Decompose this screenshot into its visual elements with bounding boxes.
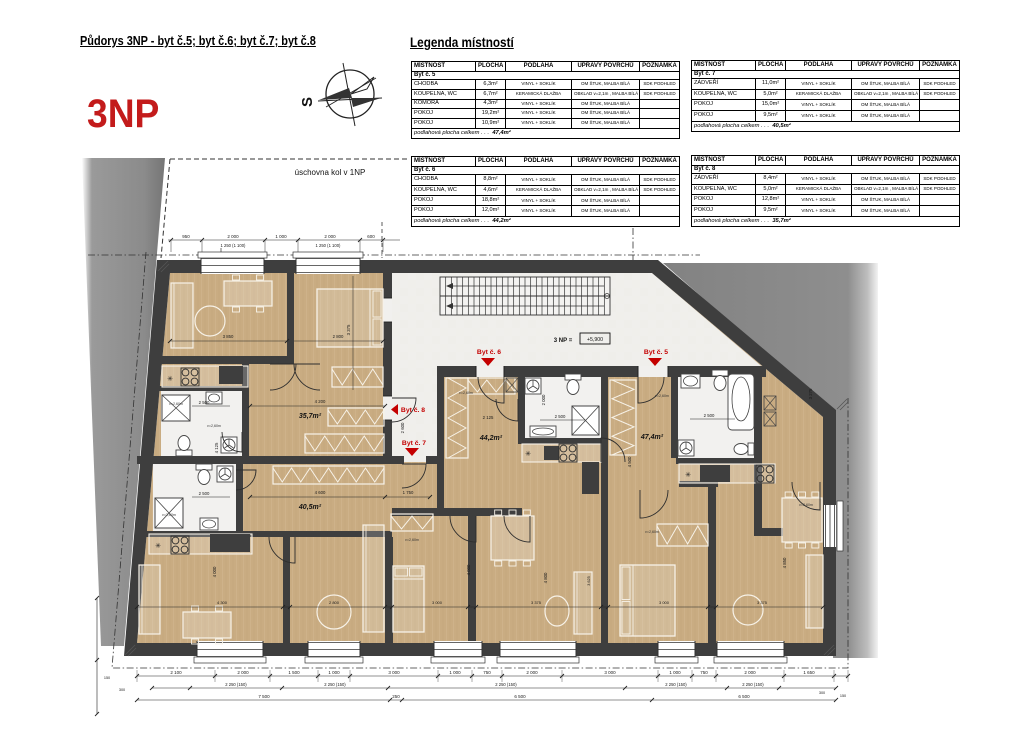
svg-text:v=2,60m: v=2,60m (162, 513, 176, 517)
svg-text:4 200: 4 200 (315, 399, 326, 404)
svg-text:Byt č. 8: Byt č. 8 (401, 407, 425, 414)
svg-text:2 800: 2 800 (333, 334, 344, 339)
svg-text:1 000: 1 000 (449, 670, 461, 675)
svg-text:2 600: 2 600 (400, 422, 405, 433)
svg-text:2 250 (150): 2 250 (150) (324, 682, 346, 687)
svg-text:950: 950 (182, 234, 190, 239)
svg-text:47,4m²: 47,4m² (640, 434, 664, 441)
svg-text:3 000: 3 000 (604, 670, 616, 675)
svg-text:600: 600 (367, 234, 375, 239)
svg-text:2 250 (150): 2 250 (150) (225, 682, 247, 687)
svg-text:300: 300 (819, 691, 825, 695)
svg-text:4 500: 4 500 (627, 456, 632, 467)
svg-text:2 500: 2 500 (199, 491, 210, 496)
svg-text:6 500: 6 500 (514, 694, 526, 699)
svg-text:40,5m²: 40,5m² (298, 504, 322, 511)
svg-text:150: 150 (840, 694, 846, 698)
svg-text:300: 300 (119, 688, 125, 692)
svg-text:2 500: 2 500 (555, 414, 566, 419)
svg-text:Byt č. 7: Byt č. 7 (402, 440, 426, 447)
svg-text:4 125: 4 125 (214, 442, 219, 453)
svg-text:3 375: 3 375 (757, 600, 768, 605)
svg-text:750: 750 (700, 670, 708, 675)
svg-text:4 000: 4 000 (466, 564, 471, 575)
svg-text:1 500: 1 500 (288, 670, 300, 675)
svg-text:v=2,60m: v=2,60m (169, 402, 183, 406)
svg-text:3 000: 3 000 (432, 600, 443, 605)
svg-text:3 275: 3 275 (808, 388, 813, 399)
svg-text:2 000: 2 000 (237, 670, 249, 675)
svg-text:2 000: 2 000 (324, 234, 336, 239)
svg-text:4 850: 4 850 (782, 557, 787, 568)
svg-text:750: 750 (483, 670, 491, 675)
svg-text:3 850: 3 850 (223, 334, 234, 339)
svg-text:S: S (299, 97, 316, 107)
svg-text:35,7m²: 35,7m² (299, 413, 322, 420)
svg-text:2 125: 2 125 (483, 415, 494, 420)
svg-text:2 000: 2 000 (526, 670, 538, 675)
svg-text:2 250 (150): 2 250 (150) (495, 682, 517, 687)
svg-text:2 250 (150): 2 250 (150) (665, 682, 687, 687)
svg-text:2 500: 2 500 (199, 400, 210, 405)
svg-text:✳: ✳ (685, 471, 691, 479)
svg-text:150: 150 (104, 676, 110, 680)
svg-text:+5,900: +5,900 (587, 337, 603, 343)
svg-text:3 375: 3 375 (531, 600, 542, 605)
svg-text:2 500: 2 500 (704, 413, 715, 418)
svg-text:1 250 (1 100): 1 250 (1 100) (221, 243, 247, 248)
svg-text:4 000: 4 000 (212, 566, 217, 577)
svg-text:3 NP =: 3 NP = (554, 338, 573, 344)
svg-text:2 100: 2 100 (170, 670, 182, 675)
svg-text:3 000: 3 000 (388, 670, 400, 675)
svg-text:44,2m²: 44,2m² (479, 435, 503, 442)
svg-text:1 000: 1 000 (328, 670, 340, 675)
svg-text:1 650: 1 650 (803, 670, 815, 675)
svg-text:v=2,60m: v=2,60m (655, 394, 669, 398)
svg-text:1 750: 1 750 (403, 490, 414, 495)
svg-text:3 000: 3 000 (659, 600, 670, 605)
svg-text:4 800: 4 800 (543, 572, 548, 583)
svg-text:✳: ✳ (167, 375, 173, 383)
svg-text:1 000: 1 000 (669, 670, 681, 675)
svg-text:2 800: 2 800 (329, 600, 340, 605)
svg-text:2 000: 2 000 (227, 234, 239, 239)
svg-text:v=2,60m: v=2,60m (645, 530, 659, 534)
svg-text:4 300: 4 300 (217, 600, 228, 605)
svg-text:✳: ✳ (155, 542, 161, 550)
svg-text:v=2,60m: v=2,60m (207, 424, 221, 428)
svg-text:2 250 (150): 2 250 (150) (742, 682, 764, 687)
svg-text:3 625: 3 625 (587, 576, 591, 586)
svg-text:Byt č. 5: Byt č. 5 (644, 349, 668, 356)
svg-text:1 250 (1 100): 1 250 (1 100) (316, 243, 342, 248)
svg-text:v=2,60m: v=2,60m (799, 503, 813, 507)
svg-text:1 000: 1 000 (275, 234, 287, 239)
svg-text:v=2,60m: v=2,60m (405, 538, 419, 542)
svg-text:úschovna kol v 1NP: úschovna kol v 1NP (295, 168, 366, 177)
svg-text:v=2,60m: v=2,60m (459, 391, 473, 395)
svg-text:250: 250 (392, 694, 400, 699)
svg-text:6 500: 6 500 (738, 694, 750, 699)
svg-text:2 000: 2 000 (541, 394, 546, 405)
svg-text:Byt č. 6: Byt č. 6 (477, 349, 501, 356)
svg-text:4 600: 4 600 (315, 490, 326, 495)
svg-text:2 000: 2 000 (744, 670, 756, 675)
svg-text:7 500: 7 500 (258, 694, 270, 699)
svg-text:✳: ✳ (525, 450, 531, 458)
svg-text:3 375: 3 375 (346, 324, 351, 335)
